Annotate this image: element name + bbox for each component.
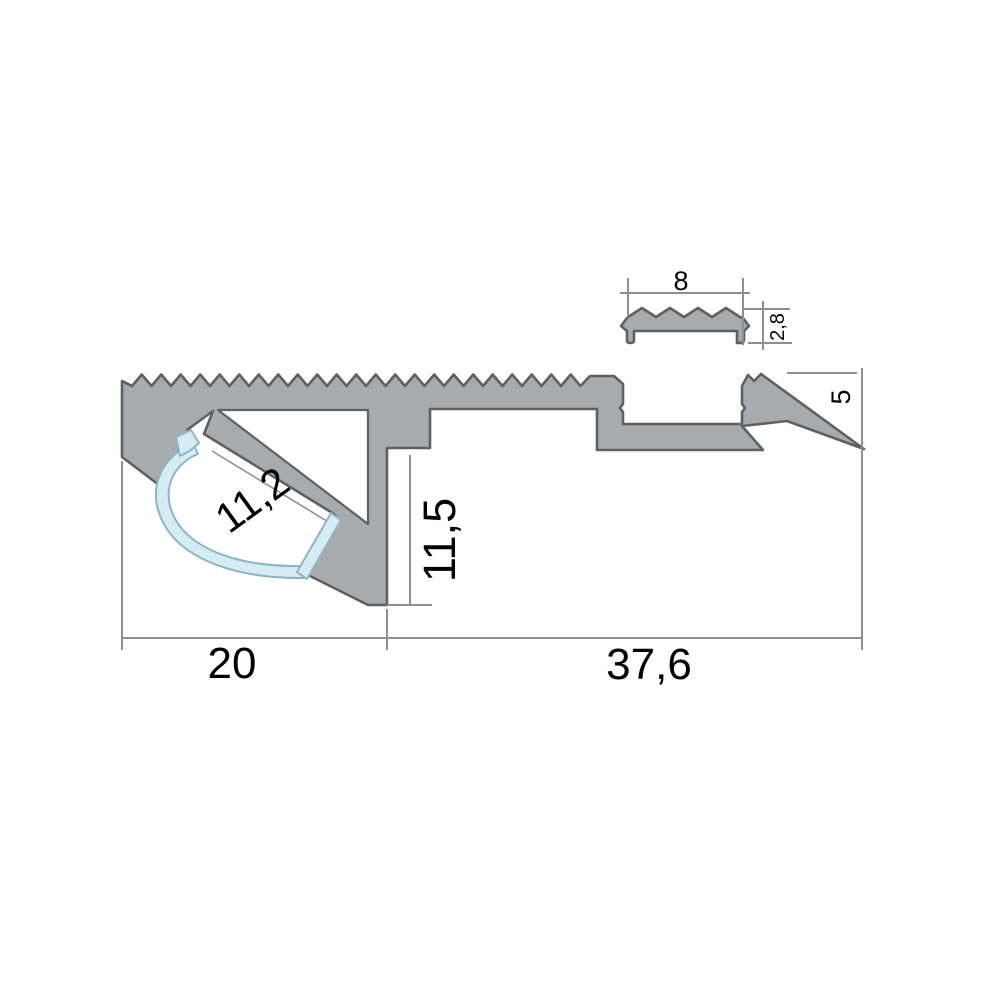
dim-label-rear-edge-height: 5	[826, 389, 856, 404]
dim-label-insert-width: 8	[673, 266, 688, 296]
cover-insert-group	[621, 308, 749, 343]
cover-insert-cross-section	[621, 308, 749, 343]
dim-label-nose-width: 20	[208, 639, 257, 688]
technical-drawing: 8 2,8 5 11,2 11,5 20 37,6	[0, 0, 1000, 1000]
dim-label-front-height: 11,5	[414, 498, 465, 582]
drawing-canvas: 8 2,8 5 11,2 11,5 20 37,6	[0, 0, 1000, 1000]
dim-label-tread-width: 37,6	[606, 640, 692, 689]
dim-label-insert-height: 2,8	[767, 313, 789, 341]
